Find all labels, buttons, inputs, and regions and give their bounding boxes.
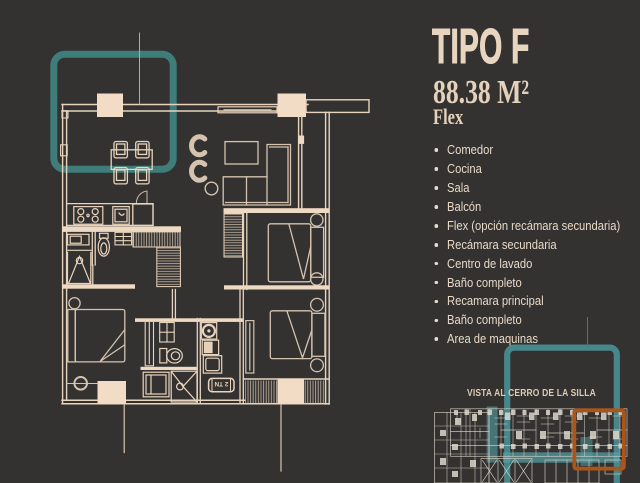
svg-text:2 TN: 2 TN <box>214 380 228 387</box>
